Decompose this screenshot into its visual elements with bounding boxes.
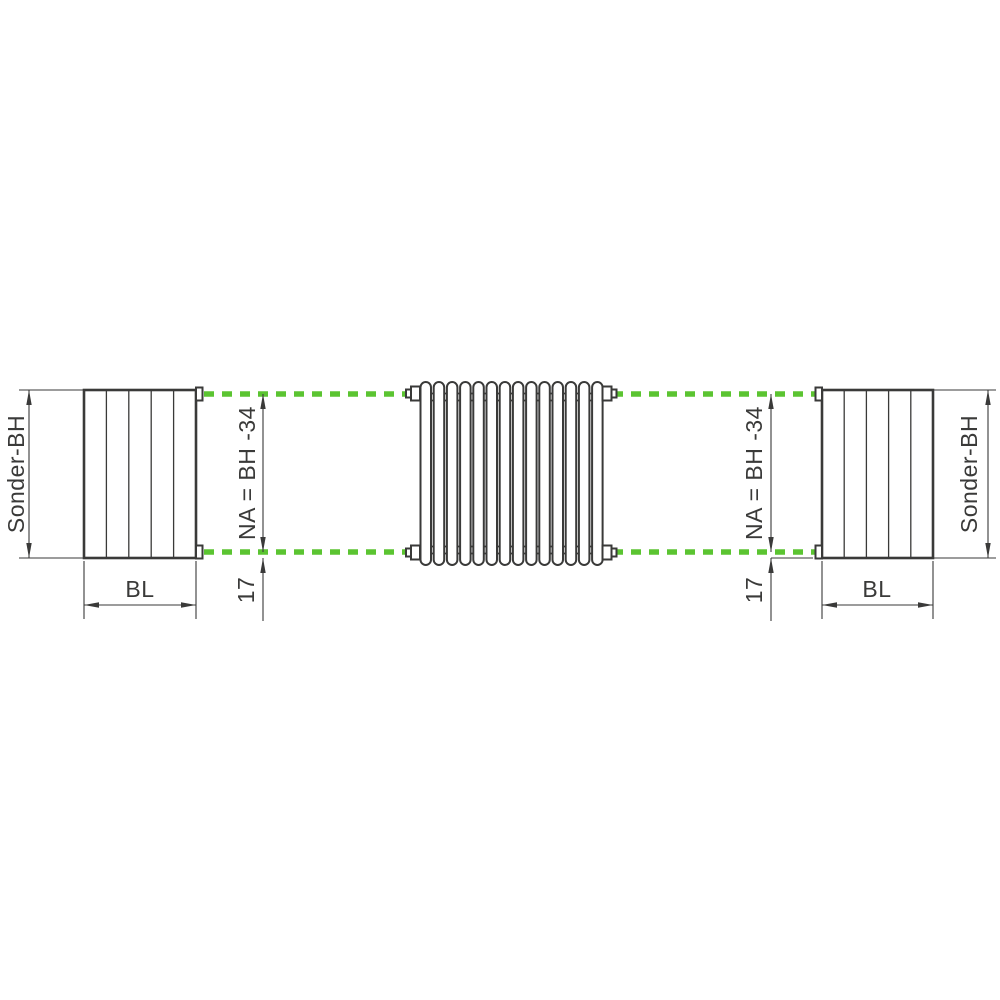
left-side-top-nipple bbox=[196, 388, 203, 401]
technical-drawing-canvas: Sonder-BH Sonder-BH BL BL NA = BH -34 NA… bbox=[0, 0, 1000, 1000]
center-bottom-left-nipple bbox=[411, 546, 420, 560]
na-left-label: NA = BH -34 bbox=[234, 406, 260, 540]
center-top-right-nipple bbox=[603, 387, 612, 401]
left-side-view bbox=[84, 388, 203, 559]
right-side-top-nipple bbox=[816, 388, 823, 401]
arrow-up-icon bbox=[260, 558, 265, 573]
arrow-right-icon bbox=[181, 602, 196, 607]
arrow-up-icon bbox=[768, 394, 773, 409]
center-bottom-right-nipple bbox=[603, 546, 612, 560]
arrow-right-icon bbox=[918, 602, 933, 607]
offset17-left-label: 17 bbox=[233, 577, 259, 604]
center-top-left-nipple bbox=[411, 387, 420, 401]
radiator-tube bbox=[566, 382, 577, 565]
arrow-left-icon bbox=[822, 602, 837, 607]
left-side-body bbox=[84, 390, 196, 558]
radiator-tube bbox=[434, 382, 445, 565]
right-side-bottom-nipple bbox=[816, 546, 823, 559]
radiator-tube bbox=[500, 382, 511, 565]
na-right-label: NA = BH -34 bbox=[741, 406, 767, 540]
arrow-up-icon bbox=[26, 390, 31, 405]
radiator-tube bbox=[473, 382, 484, 565]
radiator-tubes bbox=[421, 382, 603, 565]
arrow-up-icon bbox=[985, 390, 990, 405]
radiator-tube bbox=[526, 382, 537, 565]
center-bottom-right-nipple-cap bbox=[612, 549, 617, 557]
right-side-body bbox=[822, 390, 933, 558]
radiator-tube bbox=[421, 382, 432, 565]
arrow-down-icon bbox=[768, 537, 773, 552]
radiator-tube bbox=[447, 382, 458, 565]
radiator-tube bbox=[487, 382, 498, 565]
radiator-dimension-diagram: Sonder-BH Sonder-BH BL BL NA = BH -34 NA… bbox=[0, 0, 1000, 1000]
radiator-tube bbox=[579, 382, 590, 565]
radiator-tube bbox=[592, 382, 603, 565]
right-side-view bbox=[816, 388, 934, 559]
center-front-view bbox=[406, 382, 617, 565]
radiator-tube bbox=[460, 382, 471, 565]
offset17-right-label: 17 bbox=[741, 577, 767, 604]
arrow-up-icon bbox=[768, 558, 773, 573]
bl-left-label: BL bbox=[125, 576, 154, 602]
dim-offset17-right bbox=[771, 558, 813, 621]
technical-drawing: Sonder-BH Sonder-BH BL BL NA = BH -34 NA… bbox=[3, 382, 996, 621]
left-side-bottom-nipple bbox=[196, 546, 203, 559]
center-top-right-nipple-cap bbox=[612, 390, 617, 398]
radiator-tube bbox=[539, 382, 550, 565]
radiator-tube bbox=[553, 382, 564, 565]
bl-right-label: BL bbox=[862, 576, 891, 602]
sonder-bh-right-label: Sonder-BH bbox=[956, 415, 982, 533]
center-bottom-left-nipple-cap bbox=[406, 549, 411, 557]
sonder-bh-left-label: Sonder-BH bbox=[3, 415, 29, 533]
arrow-down-icon bbox=[26, 543, 31, 558]
radiator-tube bbox=[513, 382, 524, 565]
arrow-down-icon bbox=[985, 543, 990, 558]
center-top-left-nipple-cap bbox=[406, 390, 411, 398]
arrow-left-icon bbox=[84, 602, 99, 607]
